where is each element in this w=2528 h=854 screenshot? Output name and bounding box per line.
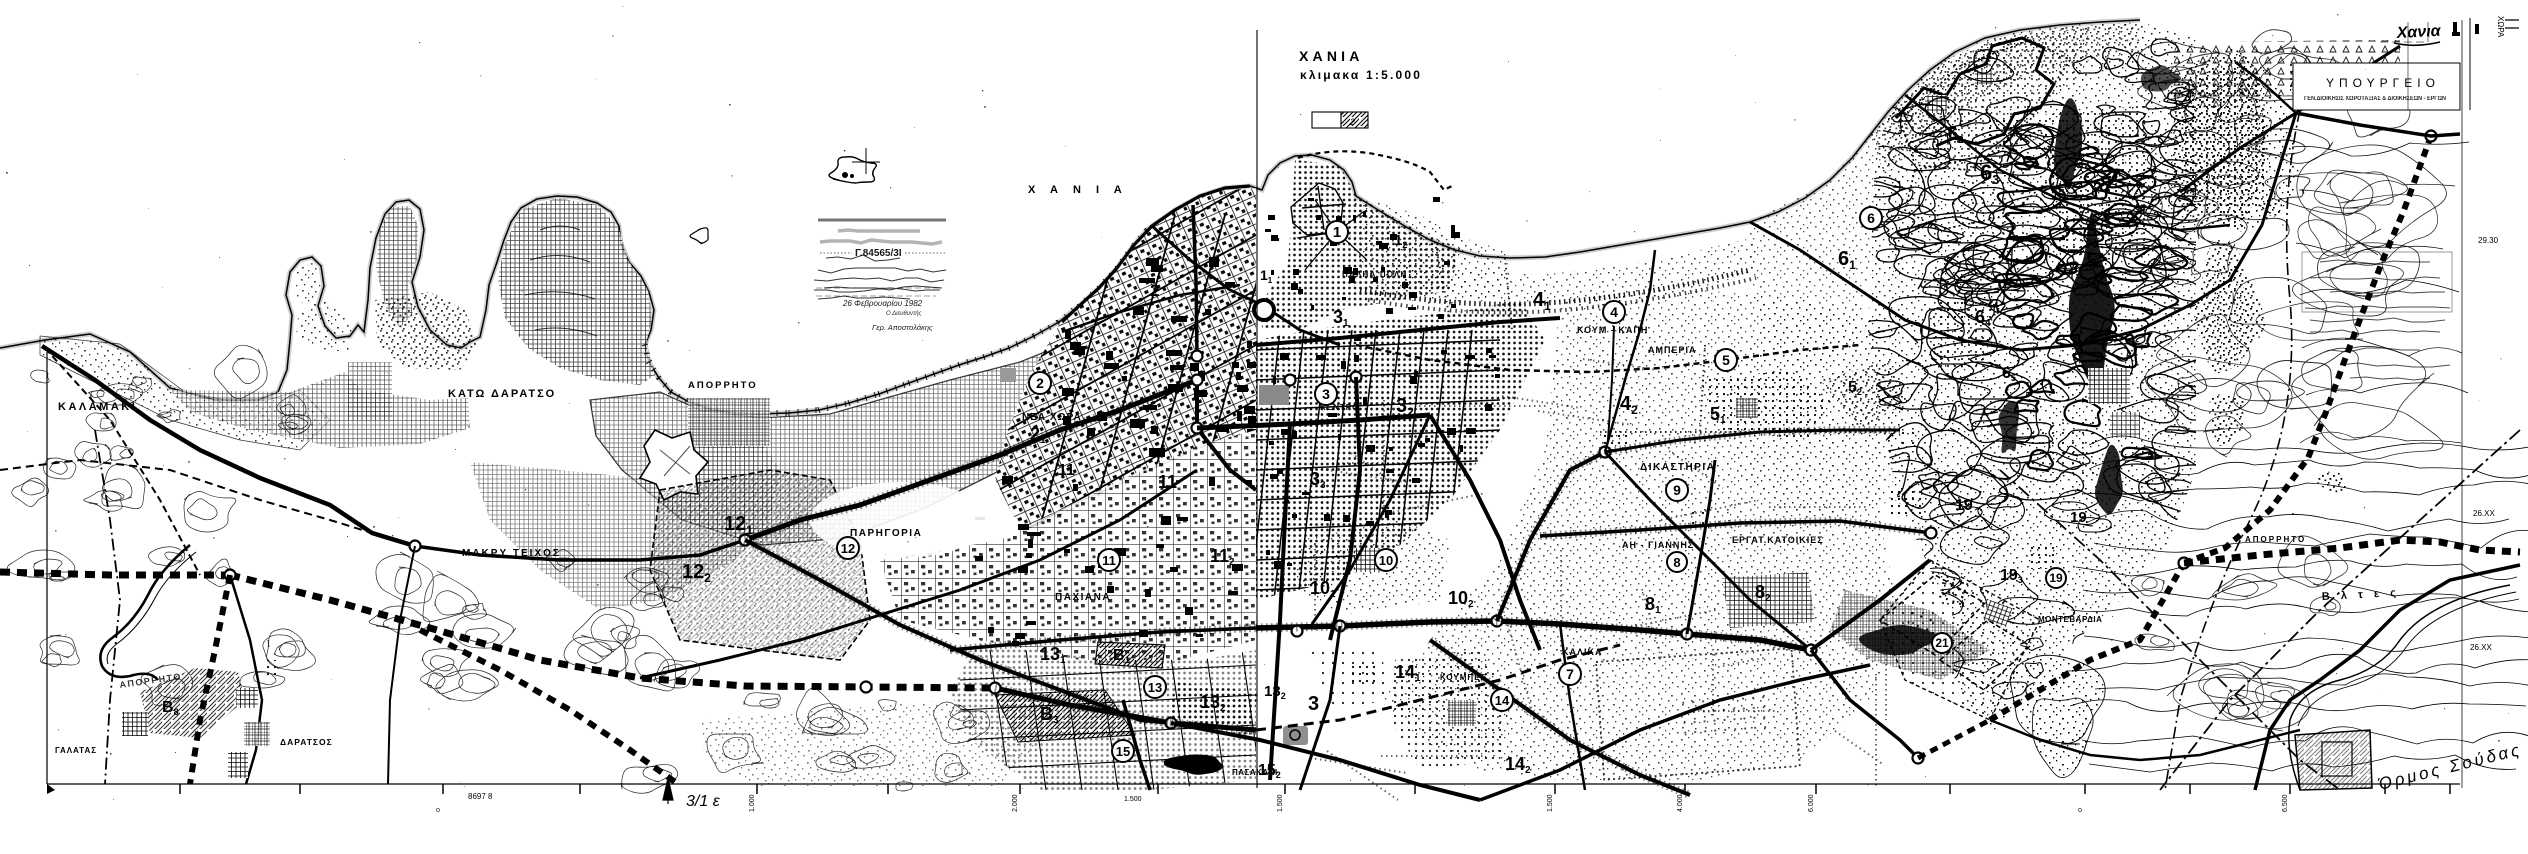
svg-text:ΑΠΟΡΡΗΤΟ: ΑΠΟΡΡΗΤΟ: [2245, 535, 2306, 544]
svg-text:19: 19: [1955, 497, 1973, 514]
svg-text:Γερ. Αποστολάκης: Γερ. Αποστολάκης: [872, 323, 933, 332]
svg-text:1.500: 1.500: [1547, 794, 1554, 812]
svg-text:Γ.84565/3Ι: Γ.84565/3Ι: [855, 248, 902, 259]
svg-text:8697 8: 8697 8: [468, 792, 493, 801]
svg-text:ΜΟΝΤΕΒΑΡΔΙΑ: ΜΟΝΤΕΒΑΡΔΙΑ: [2038, 615, 2102, 624]
svg-text:ΑΗ - ΓΙΑΝΝΗΣ: ΑΗ - ΓΙΑΝΝΗΣ: [1622, 540, 1694, 550]
svg-text:1.500: 1.500: [1124, 796, 1142, 803]
svg-text:ΠΑΡΗΓΟΡΙΑ: ΠΑΡΗΓΟΡΙΑ: [850, 528, 922, 539]
svg-text:ΜΑΚΡΥ ΤΕΙΧΟΣ: ΜΑΚΡΥ ΤΕΙΧΟΣ: [462, 548, 561, 559]
svg-text:13: 13: [1148, 680, 1162, 695]
svg-text:ο: ο: [2077, 808, 2084, 812]
svg-text:ΚΟΥΜ - ΚΑΠΗ: ΚΟΥΜ - ΚΑΠΗ: [1577, 325, 1648, 335]
svg-text:15: 15: [1116, 744, 1130, 759]
svg-text:2: 2: [1349, 117, 1355, 127]
svg-text:ΥΠΟΥΡΓΕΙΟ: ΥΠΟΥΡΓΕΙΟ: [2326, 76, 2440, 90]
svg-text:19: 19: [2070, 509, 2087, 526]
svg-text:26.ΧΧ: 26.ΧΧ: [2470, 643, 2492, 652]
svg-text:7: 7: [1566, 666, 1574, 682]
svg-text:11: 11: [1158, 472, 1177, 492]
svg-text:6.000: 6.000: [1808, 794, 1815, 812]
svg-text:ο: ο: [435, 808, 442, 812]
svg-text:3: 3: [1322, 386, 1330, 402]
svg-text:ΚΑΛΑΜΑΚΙ: ΚΑΛΑΜΑΚΙ: [58, 401, 137, 413]
svg-text:26.ΧΧ: 26.ΧΧ: [2473, 509, 2495, 518]
svg-text:2: 2: [1036, 375, 1044, 391]
svg-text:11: 11: [1102, 553, 1116, 568]
svg-text:ΓΕΝ.ΔΙΟΙΚΗΣΙΣ ΧΩΡΟΤΑΞΙΑΣ &: ΓΕΝ.ΔΙΟΙΚΗΣΙΣ ΧΩΡΟΤΑΞΙΑΣ & ΔΙΟΙΚΗΣΕΩΝ - …: [2304, 96, 2446, 102]
svg-text:26 Φεβρουαρίου 1982: 26 Φεβρουαρίου 1982: [842, 299, 923, 308]
svg-text:Ο Διευθυντής: Ο Διευθυντής: [886, 310, 922, 317]
svg-text:9: 9: [1673, 482, 1681, 498]
svg-text:29.30: 29.30: [2478, 236, 2499, 245]
svg-text:6: 6: [1867, 210, 1875, 226]
svg-text:ΠΑΧΙΑΝΑ: ΠΑΧΙΑΝΑ: [1055, 592, 1111, 603]
svg-text:8: 8: [1673, 555, 1680, 570]
svg-text:1.000: 1.000: [749, 794, 756, 812]
svg-text:Χανια: Χανια: [2395, 23, 2442, 42]
svg-text:XANIA: XANIA: [1299, 48, 1364, 64]
svg-text:ΔΙΚΑΣΤΗΡΙΑ: ΔΙΚΑΣΤΗΡΙΑ: [1640, 462, 1715, 473]
svg-text:6.500: 6.500: [2282, 794, 2289, 812]
svg-text:κλιμακα 1:5.000: κλιμακα 1:5.000: [1300, 68, 1422, 82]
svg-text:ΑΠΟΡΡΗΤΟ: ΑΠΟΡΡΗΤΟ: [688, 380, 758, 391]
svg-text:3/1 ε: 3/1 ε: [686, 793, 721, 810]
svg-text:ΚΑΛΙΚΑ: ΚΑΛΙΚΑ: [1562, 647, 1603, 657]
svg-text:19: 19: [2049, 571, 2063, 585]
svg-text:4: 4: [1610, 304, 1618, 320]
svg-text:10: 10: [1379, 553, 1393, 568]
svg-text:3: 3: [1308, 693, 1319, 715]
svg-text:12: 12: [841, 541, 855, 556]
svg-text:Χ Α Ν Ι Α: Χ Α Ν Ι Α: [1028, 184, 1128, 196]
svg-text:ΔΑΡΑΤΣΟΣ: ΔΑΡΑΤΣΟΣ: [280, 737, 333, 747]
svg-text:ΝΕΑ ΧΩΡΑ: ΝΕΑ ΧΩΡΑ: [1022, 412, 1082, 423]
svg-text:11: 11: [1058, 462, 1075, 479]
svg-text:ΠΑΛΗΑ ΠΟΛΗ: ΠΑΛΗΑ ΠΟΛΗ: [1342, 270, 1408, 279]
svg-text:ΑΜΠΕΡΙΑ: ΑΜΠΕΡΙΑ: [1648, 345, 1697, 355]
svg-text:21: 21: [1935, 636, 1949, 650]
svg-text:2.000: 2.000: [1012, 794, 1019, 812]
svg-text:ΧΩΡΑ: ΧΩΡΑ: [2496, 16, 2505, 38]
svg-text:14: 14: [1495, 693, 1510, 708]
svg-text:ΕΡΓΑΤ.ΚΑΤΟΙΚΙΕΣ: ΕΡΓΑΤ.ΚΑΤΟΙΚΙΕΣ: [1732, 535, 1824, 545]
svg-text:1.500: 1.500: [1277, 794, 1284, 812]
svg-text:4.000: 4.000: [1677, 794, 1684, 812]
svg-text:5: 5: [1722, 352, 1730, 368]
svg-text:ΓΑΛΑΤΑΣ: ΓΑΛΑΤΑΣ: [55, 746, 97, 755]
svg-text:2: 2: [1150, 281, 1159, 300]
svg-text:ΚΟΥΜΠΕΣ: ΚΟΥΜΠΕΣ: [1440, 673, 1486, 682]
svg-text:ΚΑΤΩ ΔΑΡΑΤΣΟ: ΚΑΤΩ ΔΑΡΑΤΣΟ: [448, 388, 556, 400]
svg-text:1: 1: [1333, 224, 1341, 241]
